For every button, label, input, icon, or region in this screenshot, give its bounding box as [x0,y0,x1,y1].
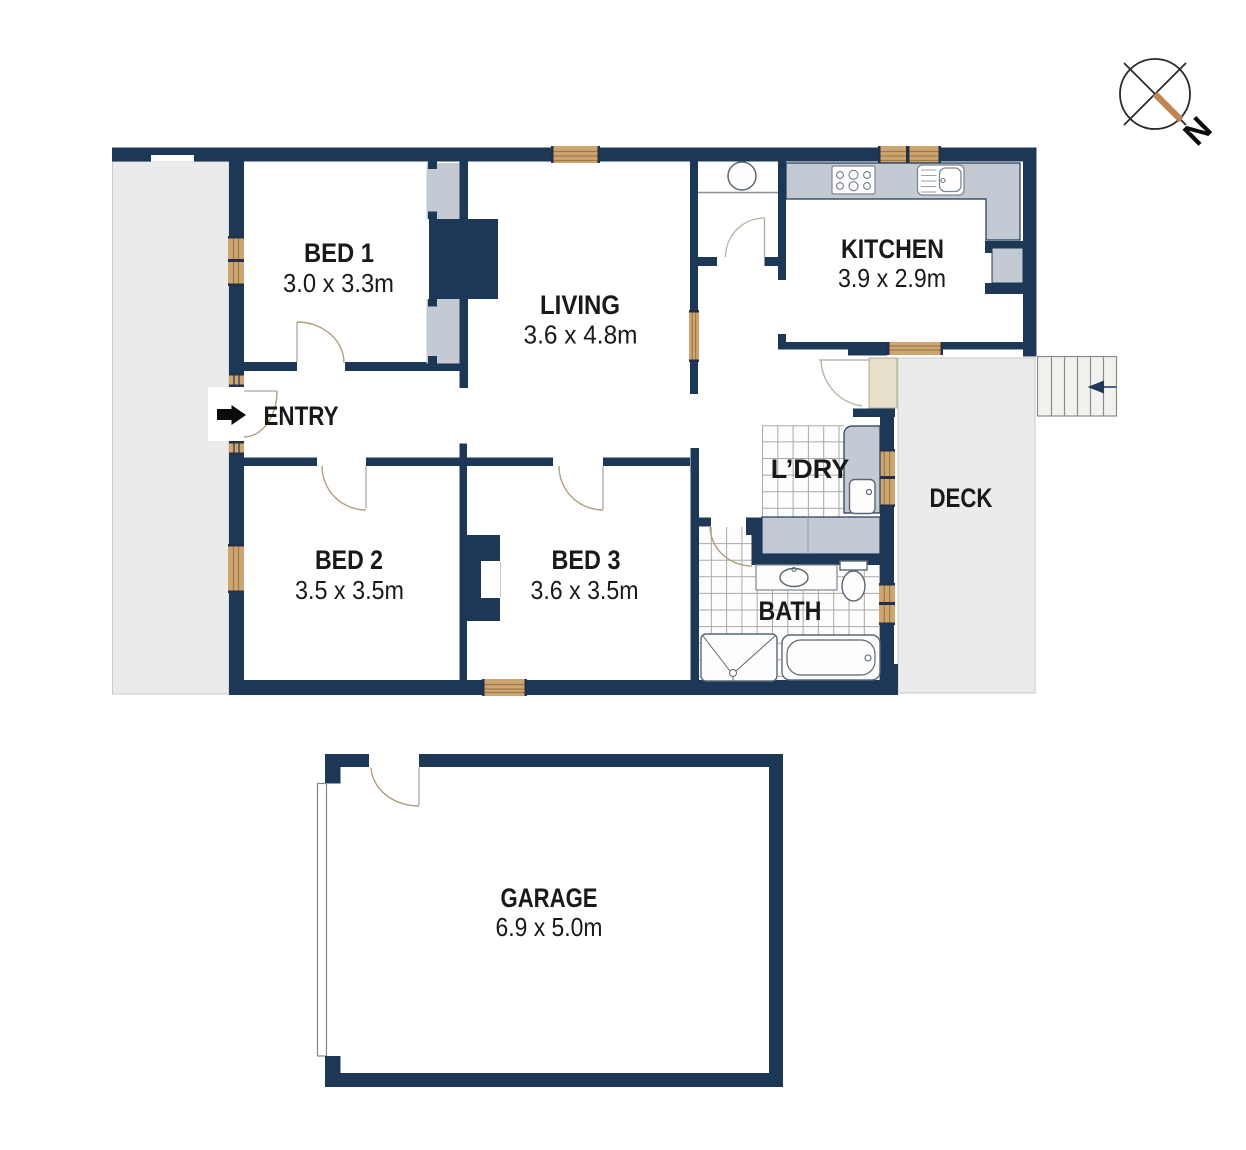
svg-text:BED 1: BED 1 [304,238,374,268]
svg-text:DECK: DECK [930,483,993,513]
svg-text:6.9 x 5.0m: 6.9 x 5.0m [496,912,603,942]
svg-text:3.6 x 4.8m: 3.6 x 4.8m [524,320,638,350]
svg-text:L’DRY: L’DRY [771,454,850,484]
svg-text:3.5 x 3.5m: 3.5 x 3.5m [295,575,404,605]
svg-text:BATH: BATH [759,596,822,626]
svg-text:3.9 x 2.9m: 3.9 x 2.9m [838,263,946,293]
svg-text:3.0 x 3.3m: 3.0 x 3.3m [283,268,394,298]
svg-text:BED 2: BED 2 [315,545,383,575]
svg-text:GARAGE: GARAGE [501,883,598,913]
svg-text:ENTRY: ENTRY [264,401,339,431]
svg-text:BED 3: BED 3 [552,545,621,575]
svg-text:3.6 x 3.5m: 3.6 x 3.5m [531,575,639,605]
svg-text:KITCHEN: KITCHEN [841,234,944,264]
svg-text:LIVING: LIVING [540,290,620,320]
